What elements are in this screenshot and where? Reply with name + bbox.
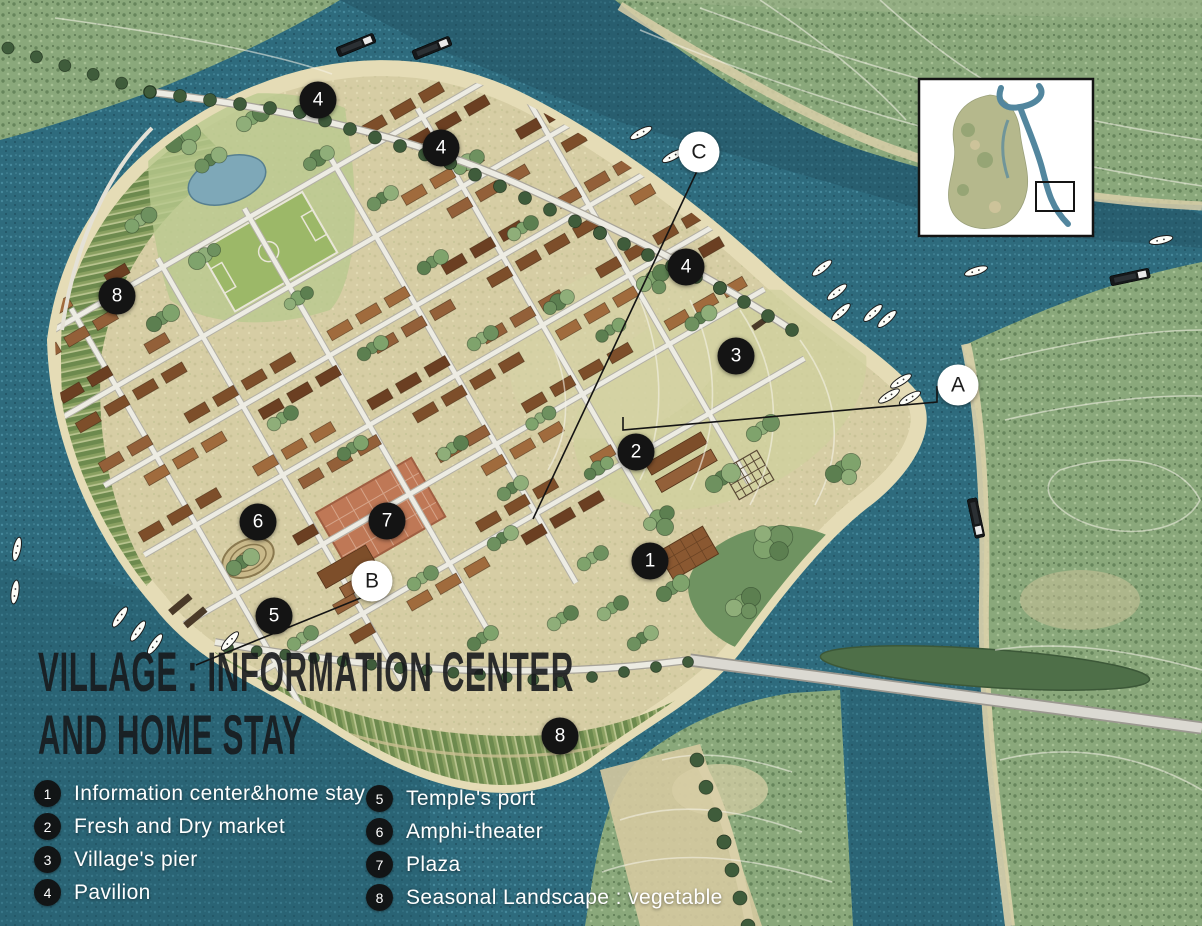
map-title-line2: AND HOME STAY (38, 703, 574, 766)
legend-number-badge: 2 (34, 813, 61, 840)
map-marker-A: A (938, 365, 979, 406)
legend-item-2: 2Fresh and Dry market (34, 810, 365, 843)
legend-label: Village's pier (74, 848, 198, 872)
map-marker-7: 7 (369, 503, 406, 540)
legend-number-badge: 8 (366, 884, 393, 911)
legend-item-3: 3Village's pier (34, 843, 365, 876)
legend-item-5: 5Temple's port (366, 782, 723, 815)
legend-label: Plaza (406, 853, 461, 877)
legend-number-badge: 4 (34, 879, 61, 906)
legend-label: Amphi-theater (406, 820, 543, 844)
legend-item-6: 6Amphi-theater (366, 815, 723, 848)
legend-item-7: 7Plaza (366, 848, 723, 881)
map-marker-B: B (352, 561, 393, 602)
legend-number-badge: 5 (366, 785, 393, 812)
legend-label: Seasonal Landscape : vegetable (406, 886, 723, 910)
legend-number-badge: 6 (366, 818, 393, 845)
legend-item-1: 1Information center&home stay (34, 777, 365, 810)
legend-number-badge: 7 (366, 851, 393, 878)
map-marker-1: 1 (632, 543, 669, 580)
legend-number-badge: 1 (34, 780, 61, 807)
forest-clearing-2 (1020, 570, 1140, 630)
legend-label: Fresh and Dry market (74, 815, 285, 839)
map-marker-6: 6 (240, 504, 277, 541)
map-marker-4: 4 (300, 82, 337, 119)
map-title-line1: VILLAGE : INFORMATION CENTER (38, 640, 574, 703)
legend-label: Information center&home stay (74, 782, 365, 806)
inset-overview-map (919, 79, 1093, 236)
legend-item-8: 8Seasonal Landscape : vegetable (366, 881, 723, 914)
masterplan-canvas: VILLAGE : INFORMATION CENTER AND HOME ST… (0, 0, 1202, 926)
map-marker-5: 5 (256, 598, 293, 635)
map-marker-8: 8 (542, 718, 579, 755)
map-marker-4: 4 (423, 130, 460, 167)
legend-number-badge: 3 (34, 846, 61, 873)
map-marker-2: 2 (618, 434, 655, 471)
legend-item-4: 4Pavilion (34, 876, 365, 909)
map-marker-4: 4 (668, 249, 705, 286)
map-title: VILLAGE : INFORMATION CENTER AND HOME ST… (38, 640, 995, 766)
map-marker-C: C (679, 132, 720, 173)
map-marker-8: 8 (99, 278, 136, 315)
map-marker-3: 3 (718, 338, 755, 375)
legend-label: Temple's port (406, 787, 535, 811)
legend-column-1: 1Information center&home stay2Fresh and … (34, 777, 365, 909)
legend-column-2: 5Temple's port6Amphi-theater7Plaza8Seaso… (366, 782, 723, 914)
legend-label: Pavilion (74, 881, 151, 905)
